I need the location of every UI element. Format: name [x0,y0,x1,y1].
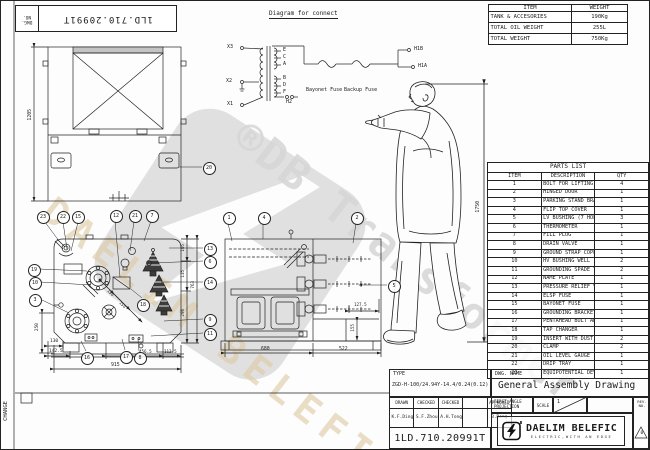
rev-value: 0 [641,432,644,437]
balloon-19: 19 [28,264,41,277]
parts-cell: 1 [595,318,649,327]
parts-cell: 21 [488,352,542,361]
balloon-5: 5 [388,280,401,293]
balloon-8: 8 [134,352,147,365]
title-block-spacer [587,397,633,413]
sign-cell: S.F.Zhou [414,409,438,428]
parts-cell: 3 [595,215,649,224]
weight-row: TOTAL OIL WEIGHT255L [489,23,628,34]
balloon-16: 16 [81,352,94,365]
weight-col-item: ITEM [489,5,572,12]
dim-142-5: 142.5 [49,350,63,355]
dim-top-height: 1205 [28,109,33,121]
weight-cell: 255L [572,23,628,34]
parts-cell: THERMOMETER [541,223,595,232]
parts-cell: 1 [595,206,649,215]
balloon-15: 15 [72,211,85,224]
parts-row: 19INSERT WITH DUST CAP (25KV)2 [488,335,649,344]
parts-cell: 2 [595,344,649,353]
parts-cell: 4 [595,181,649,190]
sign-cell: CHECKED [438,398,462,409]
parts-cell: 1 [488,181,542,190]
dwg-name-label: DWG. NAME [495,372,522,377]
dim-person-height: 1750 [476,201,481,213]
balloon-21: 21 [129,210,142,223]
rev-label: REV. NO. [636,400,648,408]
parts-cell: 1 [595,232,649,241]
balloon-17: 17 [120,351,133,364]
parts-cell: 2 [488,189,542,198]
parts-cell: DRAIN VALVE [541,241,595,250]
parts-row: 21OIL LEVEL GAUGE1 [488,352,649,361]
dim-135: 135 [181,270,185,278]
parts-cell: 1 [595,327,649,336]
parts-cell: GROUNDING BRACKET [541,309,595,318]
parts-cell: 2 [595,258,649,267]
parts-row: 4FLIP TOP COVER1 [488,206,649,215]
tap-label-a: A [283,62,286,67]
drawing-sheet: ®DB Transformer DAELIM BELEFIC [0,0,650,450]
dwg-no-label: DWG. NO. [20,13,34,24]
connect-schematic [240,46,415,107]
parts-col-desc: DESCRIPTION [541,173,595,181]
balloon-6: 6 [204,256,217,269]
sign-cell: A.H.Tong [438,409,462,428]
parts-cell: LV BUSHING (7 HOLE) [541,215,595,224]
parts-cell: 12 [488,275,542,284]
balloon-12: 12 [110,210,123,223]
top-view [31,47,202,201]
parts-cell: 4 [488,206,542,215]
parts-cell: 15 [488,301,542,310]
type-value: ZGD-H-100/24.94Y-14.4/0.24(0.12) [392,383,488,388]
parts-cell: OIL LEVEL GAUGE [541,352,595,361]
dwg-name-value: General Assembly Drawing [498,381,635,391]
parts-cell: 20 [488,344,542,353]
parts-row: 9GROUND STRAP COPPER1 [488,249,649,258]
sign-cell [463,398,487,409]
parts-row: 5LV BUSHING (7 HOLE)3 [488,215,649,224]
parts-cell: 2 [595,266,649,275]
parts-cell: GROUND STRAP COPPER [541,249,595,258]
dim-296: 296 [181,309,185,317]
parts-row: 11GROUNDING SPADE TERMINAL2 [488,266,649,275]
parts-cell: BAYONET FUSE [541,301,595,310]
parts-cell: 1 [595,249,649,258]
parts-row: 1BOLT FOR LIFTING4 [488,181,649,190]
weight-cell: 190Kg [572,12,628,23]
type-label: TYPE [393,372,405,377]
parts-cell: HV BUSHING WELL [541,258,595,267]
parts-row: 15BAYONET FUSE1 [488,301,649,310]
bayonet-fuse-label: Bayonet Fuse [306,88,342,93]
parts-cell: 19 [488,335,542,344]
sign-cell: K.F.Ding [390,409,414,428]
weight-col-weight: WEIGHT [572,5,628,12]
parts-row: 2HINGED DOOR1 [488,189,649,198]
parts-col-item: ITEM [488,173,542,181]
balloon-23: 23 [37,211,50,224]
balloon-1: 1 [223,212,236,225]
logo-box: DAELIM BELEFIC ELECTRIC,WITH AN EDGE [497,416,625,446]
parts-col-qty: QTY [595,173,649,181]
parts-cell: 13 [488,284,542,293]
terminal-h1a: H1A [418,64,427,69]
parts-cell: 3 [488,198,542,207]
parts-row: 7FILL PLUG1 [488,232,649,241]
parts-cell: 14 [488,292,542,301]
tap-label-b: B [283,76,286,81]
parts-cell: 1 [595,275,649,284]
scale-label-box: SCALE [533,397,553,413]
balloon-10: 10 [29,277,42,290]
parts-cell: HINGED DOOR [541,189,595,198]
balloon-22: 22 [57,211,70,224]
tap-label-e: E [283,48,286,53]
parts-row: 17PENTAHEAD BOLT ARRANGEMENT1 [488,318,649,327]
parts-cell: 1 [595,284,649,293]
parts-cell: 10 [488,258,542,267]
parts-cell: GROUNDING SPADE TERMINAL [541,266,595,275]
terminal-x1: X1 [227,102,233,107]
weight-cell: TOTAL WEIGHT [489,34,572,45]
parts-cell: INSERT WITH DUST CAP (25KV) [541,335,595,344]
projection-label: FIRST ANGLE PROJECTION [492,400,532,410]
scale-label: SCALE [537,403,550,408]
rev-box: REV. NO. 0 [633,397,649,449]
terminal-x3: X3 [227,45,233,50]
balloon-11: 11 [204,328,217,341]
weight-cell: TOTAL OIL WEIGHT [489,23,572,34]
tap-label-d: D [283,83,286,88]
dim-112-5: 112.5 [164,350,177,354]
person-figure [366,82,489,345]
dim-155: 155 [351,324,355,332]
parts-row: 18TAP CHANGER1 [488,327,649,336]
dim-105: 105 [181,244,185,252]
balloon-14: 14 [204,277,217,290]
weight-cell: 750Kg [572,34,628,45]
dim-250: 250 [36,323,41,331]
terminal-x2: X2 [226,79,232,84]
type-box: TYPE ZGD-H-100/24.94Y-14.4/0.24(0.12) [389,369,491,397]
parts-list-title: PARTS LIST [488,163,649,173]
parts-cell: 1 [595,198,649,207]
parts-cell: FILL PLUG [541,232,595,241]
tap-label-f: F [283,90,286,95]
parts-row: 16GROUNDING BRACKET1 [488,309,649,318]
parts-row: 12NAME PLATE1 [488,275,649,284]
scale-value-box: 1 [553,397,587,413]
balloon-3: 3 [29,294,42,307]
parts-list: PARTS LIST ITEM DESCRIPTION QTY 1BOLT FO… [487,162,649,379]
parts-cell: CLAMP [541,344,595,353]
dim-763: 763 [191,281,195,289]
parts-cell: FLIP TOP COVER [541,206,595,215]
balloon-7: 7 [146,210,159,223]
parts-cell: 2 [595,335,649,344]
terminal-h1b: H1B [414,47,423,52]
dwg-name-box: DWG. NAME General Assembly Drawing [491,369,649,397]
parts-row: 20CLAMP2 [488,344,649,353]
parts-cell: TAP CHANGER [541,327,595,336]
parts-cell: 1 [595,352,649,361]
parts-cell: NAME PLATE [541,275,595,284]
terminal-h2: H2 [286,100,292,105]
dwg-no-top-value: 1LD.710.20991T [63,14,153,24]
parts-cell: 1 [595,189,649,198]
sign-cell: DRAWN [390,398,414,409]
connect-title: Diagram for connect [269,11,338,19]
company-tagline: ELECTRIC,WITH AN EDGE [531,434,613,439]
balloon-18: 18 [137,299,150,312]
parts-cell: 5 [488,215,542,224]
parts-cell: 16 [488,309,542,318]
parts-cell: 7 [488,232,542,241]
weight-cell: TANK & ACCESORIES [489,12,572,23]
parts-cell: 1 [595,309,649,318]
parts-row: 3PARKING STAND BRACKET1 [488,198,649,207]
parts-cell: 1 [595,241,649,250]
balloon-13: 13 [204,243,217,256]
parts-cell: 1 [595,223,649,232]
dim-130: 130 [50,340,58,345]
parts-cell: 6 [488,223,542,232]
sign-cell [463,409,487,428]
company-name: DAELIM BELEFIC [526,423,617,434]
parts-cell: PRESSURE RELIEF VALVE [541,284,595,293]
parts-cell: 18 [488,327,542,336]
balloon-4: 4 [258,212,271,225]
parts-cell: 1 [595,292,649,301]
balloon-9: 9 [204,314,217,327]
weight-row: TANK & ACCESORIES190Kg [489,12,628,23]
side-view [221,230,381,357]
dwg-number: 1LD.710.20991T [394,433,485,444]
company-logo-icon [502,421,522,441]
dim-680: 680 [261,347,270,352]
parts-cell: PENTAHEAD BOLT ARRANGEMENT [541,318,595,327]
parts-row: 13PRESSURE RELIEF VALVE1 [488,284,649,293]
dwg-no-strip: DWG. NO. 1LD.710.20991T [15,5,177,32]
parts-cell: ELSP FUSE [541,292,595,301]
scale-value: 1 [557,400,560,405]
parts-cell: BOLT FOR LIFTING [541,181,595,190]
parts-row: 10HV BUSHING WELL2 [488,258,649,267]
weight-table: ITEM WEIGHT TANK & ACCESORIES190KgTOTAL … [488,4,628,45]
dim-915: 915 [111,363,120,368]
parts-row: 14ELSP FUSE1 [488,292,649,301]
parts-cell: 9 [488,249,542,258]
sign-cell: CHECKED [414,398,438,409]
parts-cell: 8 [488,241,542,250]
change-label: CHANGE [4,401,10,421]
parts-cell: 17 [488,318,542,327]
tap-label-c: C [283,55,286,60]
parts-cell: 1 [595,301,649,310]
dim-522: 522 [339,347,348,352]
dim-127-5: 127.5 [354,303,367,307]
parts-cell: 11 [488,266,542,275]
parts-row: 6THERMOMETER1 [488,223,649,232]
backup-fuse-label: Backup Fuse [344,88,377,93]
balloon-20: 20 [203,162,216,175]
weight-row: TOTAL WEIGHT750Kg [489,34,628,45]
projection-box: FIRST ANGLE PROJECTION [491,397,533,413]
parts-row: 8DRAIN VALVE1 [488,241,649,250]
dwg-number-box: 1LD.710.20991T [389,427,491,449]
parts-cell: PARKING STAND BRACKET [541,198,595,207]
balloon-2: 2 [351,212,364,225]
